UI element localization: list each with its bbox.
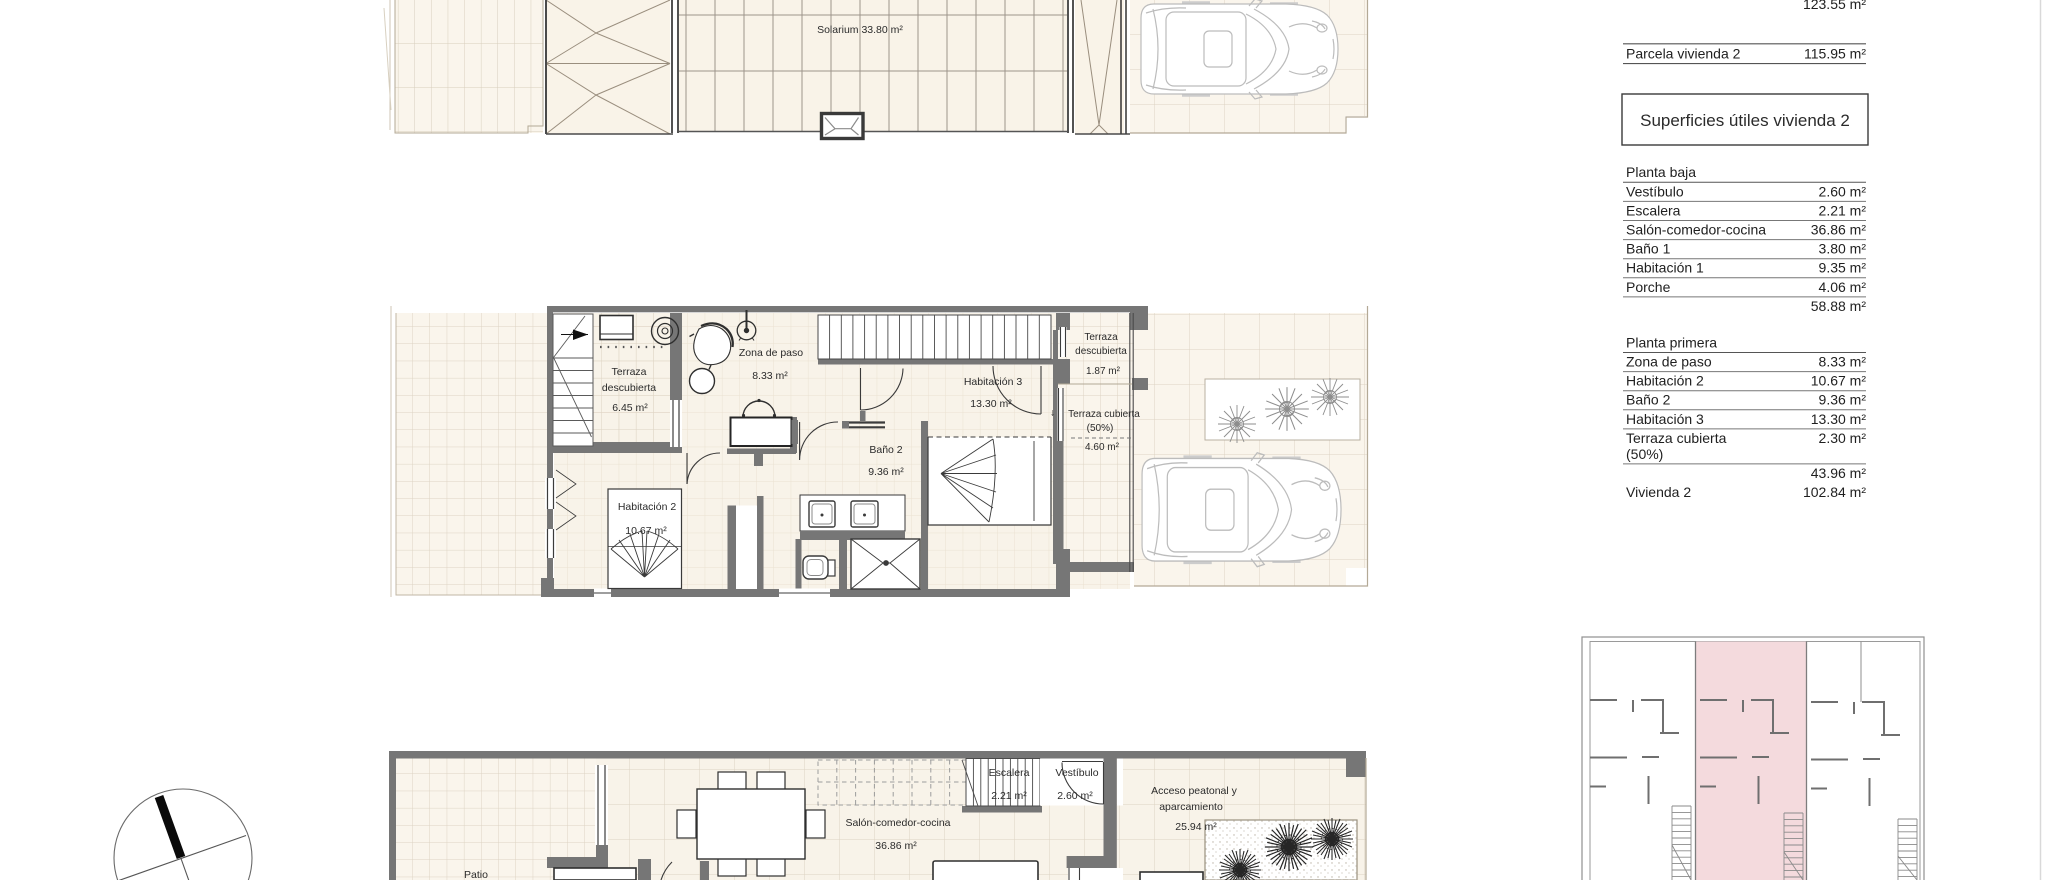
svg-text:58.88 m²: 58.88 m² bbox=[1811, 298, 1867, 314]
svg-text:3.80 m²: 3.80 m² bbox=[1819, 241, 1867, 257]
svg-text:Salón-comedor-cocina: Salón-comedor-cocina bbox=[845, 817, 950, 829]
svg-text:Baño 1: Baño 1 bbox=[1626, 241, 1671, 257]
svg-text:8.33 m²: 8.33 m² bbox=[1819, 354, 1867, 370]
svg-text:2.60 m²: 2.60 m² bbox=[1819, 183, 1867, 199]
svg-text:9.36 m²: 9.36 m² bbox=[1819, 392, 1867, 408]
svg-text:Habitación 3: Habitación 3 bbox=[1626, 411, 1704, 427]
svg-text:13.30 m²: 13.30 m² bbox=[970, 398, 1012, 410]
svg-text:123.55 m²: 123.55 m² bbox=[1803, 0, 1866, 12]
svg-text:Habitación 2: Habitación 2 bbox=[1626, 373, 1704, 389]
svg-text:Vestíbulo: Vestíbulo bbox=[1055, 767, 1098, 779]
svg-text:2.30 m²: 2.30 m² bbox=[1819, 430, 1867, 446]
svg-text:9.35 m²: 9.35 m² bbox=[1819, 260, 1867, 276]
svg-text:Terraza cubierta: Terraza cubierta bbox=[1626, 430, 1727, 446]
svg-text:102.84 m²: 102.84 m² bbox=[1803, 484, 1866, 500]
svg-text:Habitación 3: Habitación 3 bbox=[964, 376, 1023, 388]
svg-text:Terraza: Terraza bbox=[1084, 332, 1118, 343]
svg-text:Baño 2: Baño 2 bbox=[869, 444, 902, 456]
svg-text:Terraza: Terraza bbox=[611, 366, 646, 378]
svg-text:Acceso peatonal y: Acceso peatonal y bbox=[1151, 785, 1238, 797]
svg-text:10.67 m²: 10.67 m² bbox=[625, 525, 667, 537]
svg-text:descubierta: descubierta bbox=[602, 382, 656, 394]
svg-text:Solarium 33.80 m²: Solarium 33.80 m² bbox=[817, 24, 903, 36]
svg-text:25.94 m²: 25.94 m² bbox=[1175, 821, 1217, 833]
svg-text:6.45 m²: 6.45 m² bbox=[612, 402, 648, 414]
svg-text:4.60 m²: 4.60 m² bbox=[1085, 442, 1120, 453]
svg-text:36.86 m²: 36.86 m² bbox=[1811, 222, 1867, 238]
svg-text:Zona de paso: Zona de paso bbox=[739, 347, 803, 359]
svg-text:(50%): (50%) bbox=[1626, 446, 1663, 462]
svg-text:Patio: Patio bbox=[464, 869, 488, 880]
svg-text:1.87 m²: 1.87 m² bbox=[1086, 366, 1121, 377]
svg-text:Planta primera: Planta primera bbox=[1626, 335, 1717, 351]
svg-text:Vivienda 2: Vivienda 2 bbox=[1626, 484, 1691, 500]
svg-text:Porche: Porche bbox=[1626, 279, 1671, 295]
svg-text:(50%): (50%) bbox=[1087, 423, 1114, 434]
svg-text:8.33 m²: 8.33 m² bbox=[752, 370, 788, 382]
svg-text:Zona de paso: Zona de paso bbox=[1626, 354, 1712, 370]
svg-text:Planta baja: Planta baja bbox=[1626, 164, 1696, 180]
svg-text:2.21 m²: 2.21 m² bbox=[1819, 202, 1867, 218]
svg-text:↓: ↓ bbox=[1050, 408, 1055, 419]
svg-text:Vestíbulo: Vestíbulo bbox=[1626, 183, 1684, 199]
svg-text:43.96 m²: 43.96 m² bbox=[1811, 465, 1867, 481]
svg-text:4.06 m²: 4.06 m² bbox=[1819, 279, 1867, 295]
svg-text:aparcamiento: aparcamiento bbox=[1159, 801, 1223, 813]
svg-text:Terraza cubierta: Terraza cubierta bbox=[1068, 409, 1140, 420]
svg-text:descubierta: descubierta bbox=[1075, 346, 1127, 357]
svg-text:115.95 m²: 115.95 m² bbox=[1804, 46, 1866, 62]
svg-text:13.30 m²: 13.30 m² bbox=[1811, 411, 1867, 427]
svg-text:Habitación 2: Habitación 2 bbox=[618, 501, 677, 513]
svg-text:Baño 2: Baño 2 bbox=[1626, 392, 1671, 408]
svg-text:Habitación 1: Habitación 1 bbox=[1626, 260, 1704, 276]
svg-text:9.36 m²: 9.36 m² bbox=[868, 466, 904, 478]
svg-text:2.60 m²: 2.60 m² bbox=[1057, 790, 1093, 802]
svg-text:10.67 m²: 10.67 m² bbox=[1811, 373, 1867, 389]
svg-text:Superficies útiles vivienda 2: Superficies útiles vivienda 2 bbox=[1640, 111, 1850, 130]
svg-text:Escalera: Escalera bbox=[989, 767, 1030, 779]
svg-text:Salón-comedor-cocina: Salón-comedor-cocina bbox=[1626, 222, 1766, 238]
svg-text:2.21 m²: 2.21 m² bbox=[991, 790, 1027, 802]
svg-text:Escalera: Escalera bbox=[1626, 202, 1681, 218]
svg-text:36.86 m²: 36.86 m² bbox=[875, 840, 917, 852]
svg-text:Parcela vivienda 2: Parcela vivienda 2 bbox=[1626, 46, 1741, 62]
